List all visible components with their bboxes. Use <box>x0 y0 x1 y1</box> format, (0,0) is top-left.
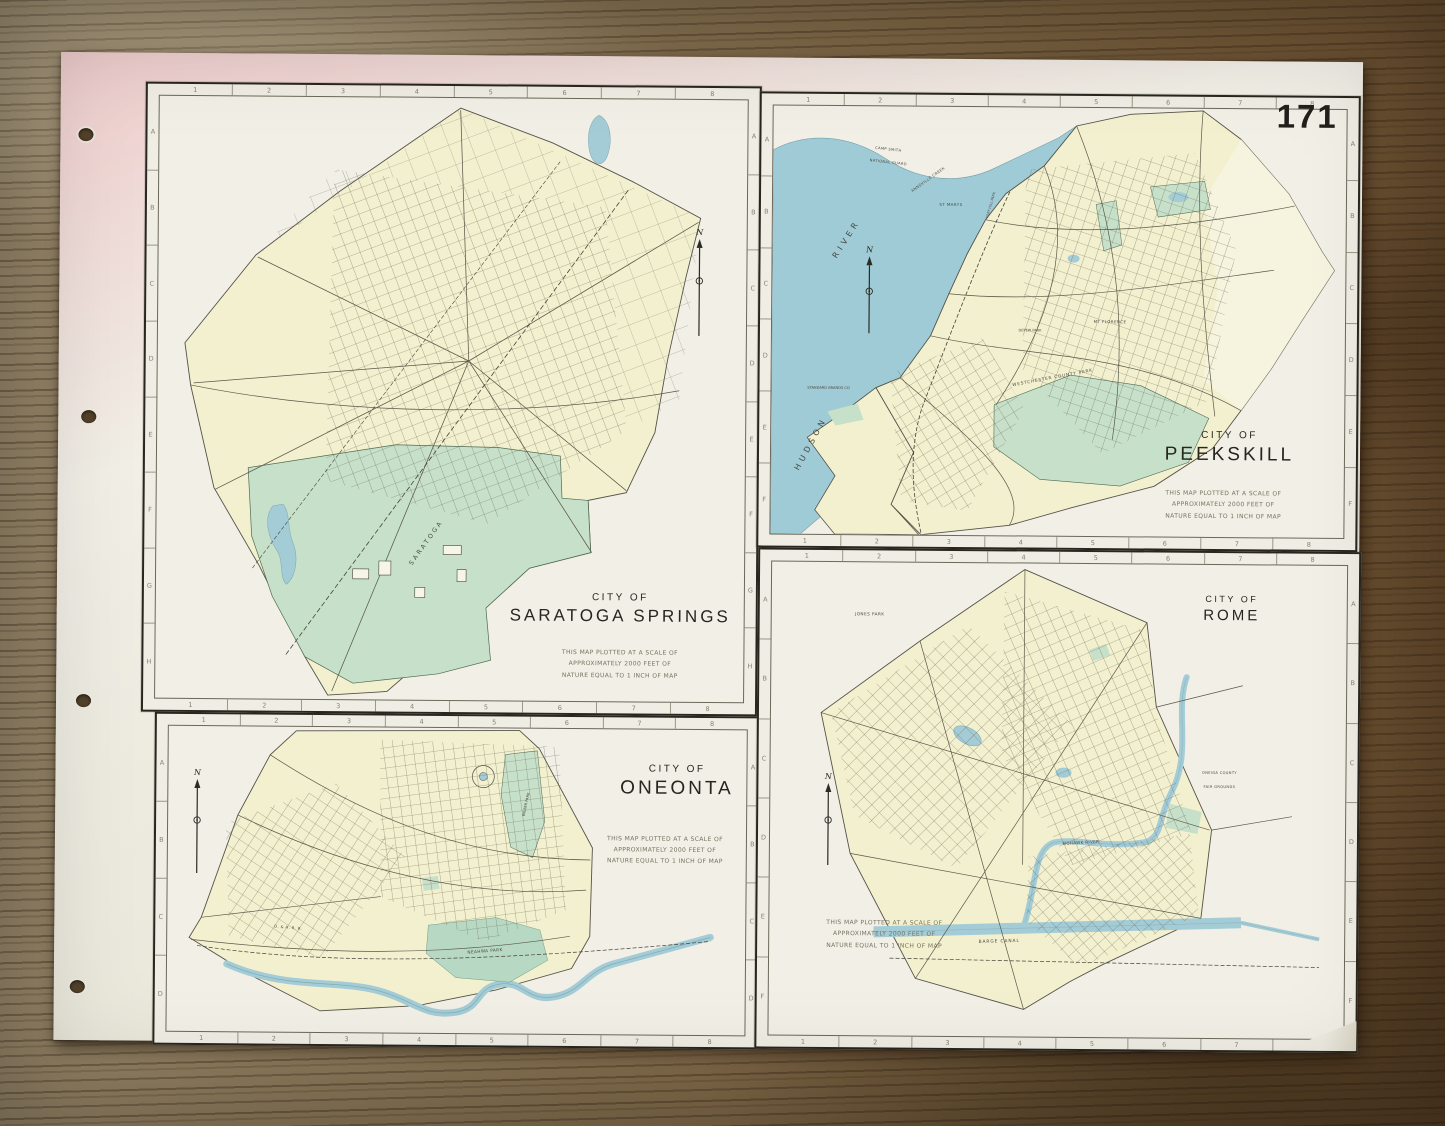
grid-label: D <box>1345 324 1357 396</box>
grid-label: 3 <box>915 551 987 563</box>
map-label: JONES PARK <box>855 612 884 617</box>
map-title-city: PEEKSKILL <box>1165 442 1295 467</box>
page-number: 171 <box>1277 97 1338 135</box>
scale-line: THIS MAP PLOTTED AT A SCALE OF <box>607 833 723 845</box>
grid-label: 1 <box>168 714 240 726</box>
atlas-page: 171 12345678 12345678 ABCDEFGH ABCDEFGH <box>53 52 1363 1050</box>
grid-label: A <box>1348 565 1360 643</box>
grid-label: E <box>1345 881 1357 960</box>
grid-label: 4 <box>375 700 449 712</box>
grid-label: C <box>758 718 770 797</box>
compass-n-label: N <box>865 245 874 254</box>
grid-label: 2 <box>839 1036 911 1048</box>
map-title-prefix: CITY OF <box>620 761 734 777</box>
grid-label: A <box>761 104 773 175</box>
grid-label: 7 <box>603 717 676 729</box>
map-scale-note: THIS MAP PLOTTED AT A SCALE OF APPROXIMA… <box>1165 487 1281 522</box>
grid-label: 6 <box>527 87 601 99</box>
grid-label: 1 <box>773 94 844 106</box>
grid-label: C <box>155 878 167 955</box>
compass-n-label: N <box>193 768 202 777</box>
binder-hole <box>81 410 96 423</box>
grid-label: 1 <box>767 1035 838 1047</box>
grid-label: E <box>145 396 157 472</box>
scale-line: NATURE EQUAL TO 1 INCH OF MAP <box>562 669 678 681</box>
grid-label: G <box>745 552 757 628</box>
grid-label: C <box>760 247 772 319</box>
grid-label: 1 <box>159 84 232 96</box>
map-label: ST MARYS <box>939 203 962 208</box>
grid-label: F <box>1344 467 1356 539</box>
scale-line: APPROXIMATELY 2000 FEET OF <box>826 928 942 940</box>
map-label: ANNSVILLE CREEK <box>910 166 945 193</box>
grid-label: 4 <box>382 1033 455 1045</box>
map-title-prefix: CITY OF <box>1165 427 1295 443</box>
map-label: BARGE CANAL <box>979 939 1020 945</box>
grid-label: D <box>759 319 771 391</box>
grid-label: 6 <box>527 1035 600 1047</box>
map-label: MOHAWK RIVER <box>1062 840 1099 847</box>
grid-label: 5 <box>453 86 527 98</box>
map-scale-note: THIS MAP PLOTTED AT A SCALE OF APPROXIMA… <box>826 917 942 952</box>
grid-label: A <box>748 99 760 174</box>
scale-line: THIS MAP PLOTTED AT A SCALE OF <box>562 647 678 659</box>
grid-label: A <box>760 560 772 638</box>
grid-label: 2 <box>227 699 301 711</box>
grid-label: F <box>758 463 770 535</box>
map-title-city: ONEONTA <box>620 776 734 801</box>
grid-label: 3 <box>912 536 984 548</box>
grid-label: 5 <box>455 1034 528 1046</box>
grid-label: A <box>156 725 168 801</box>
map-title-prefix: CITY OF <box>510 589 731 606</box>
map-label: NEAHWA PARK <box>467 947 503 954</box>
scale-line: NATURE EQUAL TO 1 INCH OF MAP <box>607 856 723 868</box>
grid-label: 8 <box>675 718 748 730</box>
map-label: WESTCHESTER COUNTY PARK <box>1012 368 1093 388</box>
grid-label: D <box>758 797 770 876</box>
scale-line: APPROXIMATELY 2000 FEET OF <box>607 844 723 856</box>
grid-label: 7 <box>1204 97 1276 109</box>
map-title-city: SARATOGA SPRINGS <box>510 604 731 627</box>
map-label: RIVER <box>832 218 863 260</box>
north-arrow-icon: N <box>861 243 878 338</box>
peekskill-map-labels: HUDSONRIVERCAMP SMITHNATIONAL GUARDANNSV… <box>770 106 1346 538</box>
map-label: CAMP SMITH <box>875 146 902 153</box>
map-title: CITY OF PEEKSKILL <box>1165 427 1295 467</box>
map-scale-note: THIS MAP PLOTTED AT A SCALE OF APPROXIMA… <box>562 647 678 682</box>
grid-label: 2 <box>842 550 914 562</box>
grid-label: 2 <box>232 84 306 96</box>
grid-label: B <box>1347 643 1359 722</box>
north-arrow-icon: N <box>691 226 708 341</box>
grid-label: 6 <box>530 717 603 729</box>
grid-label: 8 <box>1272 1039 1344 1051</box>
grid-label: 4 <box>988 95 1060 107</box>
grid-label: 2 <box>237 1032 310 1044</box>
grid-label: 4 <box>379 85 453 97</box>
grid-label: 3 <box>306 85 380 97</box>
grid-label: E <box>746 401 758 477</box>
grid-label: 6 <box>1128 1038 1200 1050</box>
map-scale-note: THIS MAP PLOTTED AT A SCALE OF APPROXIMA… <box>607 833 723 868</box>
grid-label: 7 <box>601 87 675 99</box>
map-label: ONEIDA COUNTY <box>1202 771 1237 775</box>
grid-label: 2 <box>840 535 912 547</box>
grid-label: F <box>756 956 768 1035</box>
grid-label: B <box>759 639 771 718</box>
grid-label: F <box>144 472 156 548</box>
grid-label: H <box>143 623 155 699</box>
scale-line: NATURE EQUAL TO 1 INCH OF MAP <box>826 939 942 951</box>
grid-label: A <box>147 95 159 170</box>
map-label: FORT HILL PARK <box>985 192 996 219</box>
map-label: FAIR GROUNDS <box>1203 785 1235 789</box>
grid-label: A <box>1347 109 1359 180</box>
grid-label: E <box>757 877 769 956</box>
grid-label: 6 <box>1131 552 1203 564</box>
saratoga-springs-panel: 12345678 12345678 ABCDEFGH ABCDEFGH <box>141 82 762 717</box>
grid-label: 4 <box>984 536 1056 548</box>
grid-label: 2 <box>239 714 312 726</box>
grid-label: E <box>759 391 771 463</box>
grid-label: F <box>745 476 757 552</box>
grid-label: 5 <box>1055 1038 1127 1050</box>
oneonta-panel: 12345678 12345678 ABCD ABCD <box>152 712 761 1050</box>
grid-label: F <box>1344 961 1356 1040</box>
map-label: WILBER PARK <box>522 793 531 818</box>
grid-label: 8 <box>1272 538 1344 550</box>
grid-label: 8 <box>1276 553 1348 565</box>
grid-label: 4 <box>983 1037 1055 1049</box>
grid-label: 5 <box>448 701 522 713</box>
compass-n-label: N <box>695 228 704 237</box>
scale-line: NATURE EQUAL TO 1 INCH OF MAP <box>1165 510 1281 522</box>
grid-label: D <box>145 320 157 396</box>
grid-label: D <box>154 955 166 1032</box>
grid-label: 6 <box>1128 537 1200 549</box>
grid-label: 3 <box>301 700 375 712</box>
binder-hole <box>78 128 93 141</box>
grid-label: 7 <box>1204 553 1276 565</box>
map-title: CITY OF SARATOGA SPRINGS <box>510 589 731 627</box>
map-label: NATIONAL GUARD <box>869 158 907 166</box>
grid-label: 7 <box>1200 1039 1272 1051</box>
grid-label: 7 <box>596 702 670 714</box>
grid-label: 3 <box>916 95 988 107</box>
grid-label: 2 <box>844 94 916 106</box>
map-label: MT FLORENCE <box>1094 320 1127 325</box>
compass-n-label: N <box>823 772 832 781</box>
grid-label: C <box>747 250 759 326</box>
grid-label: 8 <box>675 88 749 100</box>
grid-label: 8 <box>673 1036 746 1048</box>
map-label: D. & H. R. R. <box>274 925 303 932</box>
map-label: DEPEW PARK <box>1018 328 1041 332</box>
grid-label: 1 <box>154 699 227 711</box>
map-label: HUDSON <box>793 416 829 472</box>
scale-line: THIS MAP PLOTTED AT A SCALE OF <box>1165 487 1281 499</box>
grid-label: 1 <box>769 534 840 546</box>
map-label: SARATOGA <box>408 519 445 567</box>
map-title: CITY OF ONEONTA <box>620 761 734 801</box>
grid-label: B <box>761 175 773 247</box>
oneonta-map: NEAHWA PARKWILBER PARKD. & H. R. R. N CI… <box>165 725 747 1037</box>
grid-label: 5 <box>1059 552 1131 564</box>
rome-map: JONES PARKONEIDA COUNTYFAIR GROUNDSMOHAW… <box>767 561 1348 1041</box>
photo-scene: 171 12345678 12345678 ABCDEFGH ABCDEFGH <box>0 0 1445 1126</box>
grid-label: 3 <box>312 715 385 727</box>
rome-map-labels: JONES PARKONEIDA COUNTYFAIR GROUNDSMOHAW… <box>768 562 1347 1040</box>
map-title-city: ROME <box>1203 607 1260 626</box>
peekskill-panel: 12345678 12345678 ABCDEF ABCDEF <box>756 91 1361 552</box>
scale-line: THIS MAP PLOTTED AT A SCALE OF <box>826 917 942 929</box>
grid-label: 1 <box>165 1032 237 1044</box>
grid-label: 5 <box>1060 96 1132 108</box>
grid-label: B <box>1347 180 1359 252</box>
grid-label: E <box>1345 395 1357 467</box>
grid-label: H <box>744 628 756 704</box>
map-label: STANDARD BRANDS CO <box>808 386 851 390</box>
grid-label: B <box>748 174 760 250</box>
scale-line: APPROXIMATELY 2000 FEET OF <box>562 658 678 670</box>
grid-label: 3 <box>310 1033 383 1045</box>
saratoga-map: SARATOGA N CITY OF SARATOGA SPRINGS THIS… <box>154 95 749 704</box>
map-title: CITY OF ROME <box>1203 593 1260 626</box>
grid-label: B <box>156 801 168 878</box>
grid-label: 4 <box>385 715 458 727</box>
north-arrow-icon: N <box>819 770 836 870</box>
grid-label: 5 <box>1056 537 1128 549</box>
grid-label: 3 <box>911 1037 983 1049</box>
grid-label: 7 <box>600 1035 673 1047</box>
grid-label: C <box>1346 252 1358 324</box>
binder-hole <box>70 980 85 993</box>
grid-label: 6 <box>1132 96 1204 108</box>
rome-panel: 12345678 12345678 ABCDEF ABCDEF <box>754 547 1361 1053</box>
grid-label: G <box>144 547 156 623</box>
grid-label: D <box>1346 802 1358 881</box>
grid-label: D <box>746 325 758 401</box>
north-arrow-icon: N <box>189 766 206 878</box>
scale-line: APPROXIMATELY 2000 FEET OF <box>1165 499 1281 511</box>
map-title-prefix: CITY OF <box>1203 593 1260 607</box>
grid-label: C <box>1346 723 1358 802</box>
grid-label: 6 <box>522 702 596 714</box>
grid-label: 4 <box>987 551 1059 563</box>
grid-label: 5 <box>457 716 530 728</box>
grid-label: B <box>147 169 159 245</box>
grid-label: 8 <box>670 703 744 715</box>
grid-label: C <box>146 245 158 321</box>
grid-label: 7 <box>1200 538 1272 550</box>
peekskill-map: HUDSONRIVERCAMP SMITHNATIONAL GUARDANNSV… <box>769 105 1347 540</box>
binder-hole <box>76 694 91 707</box>
grid-label: 1 <box>771 550 842 562</box>
